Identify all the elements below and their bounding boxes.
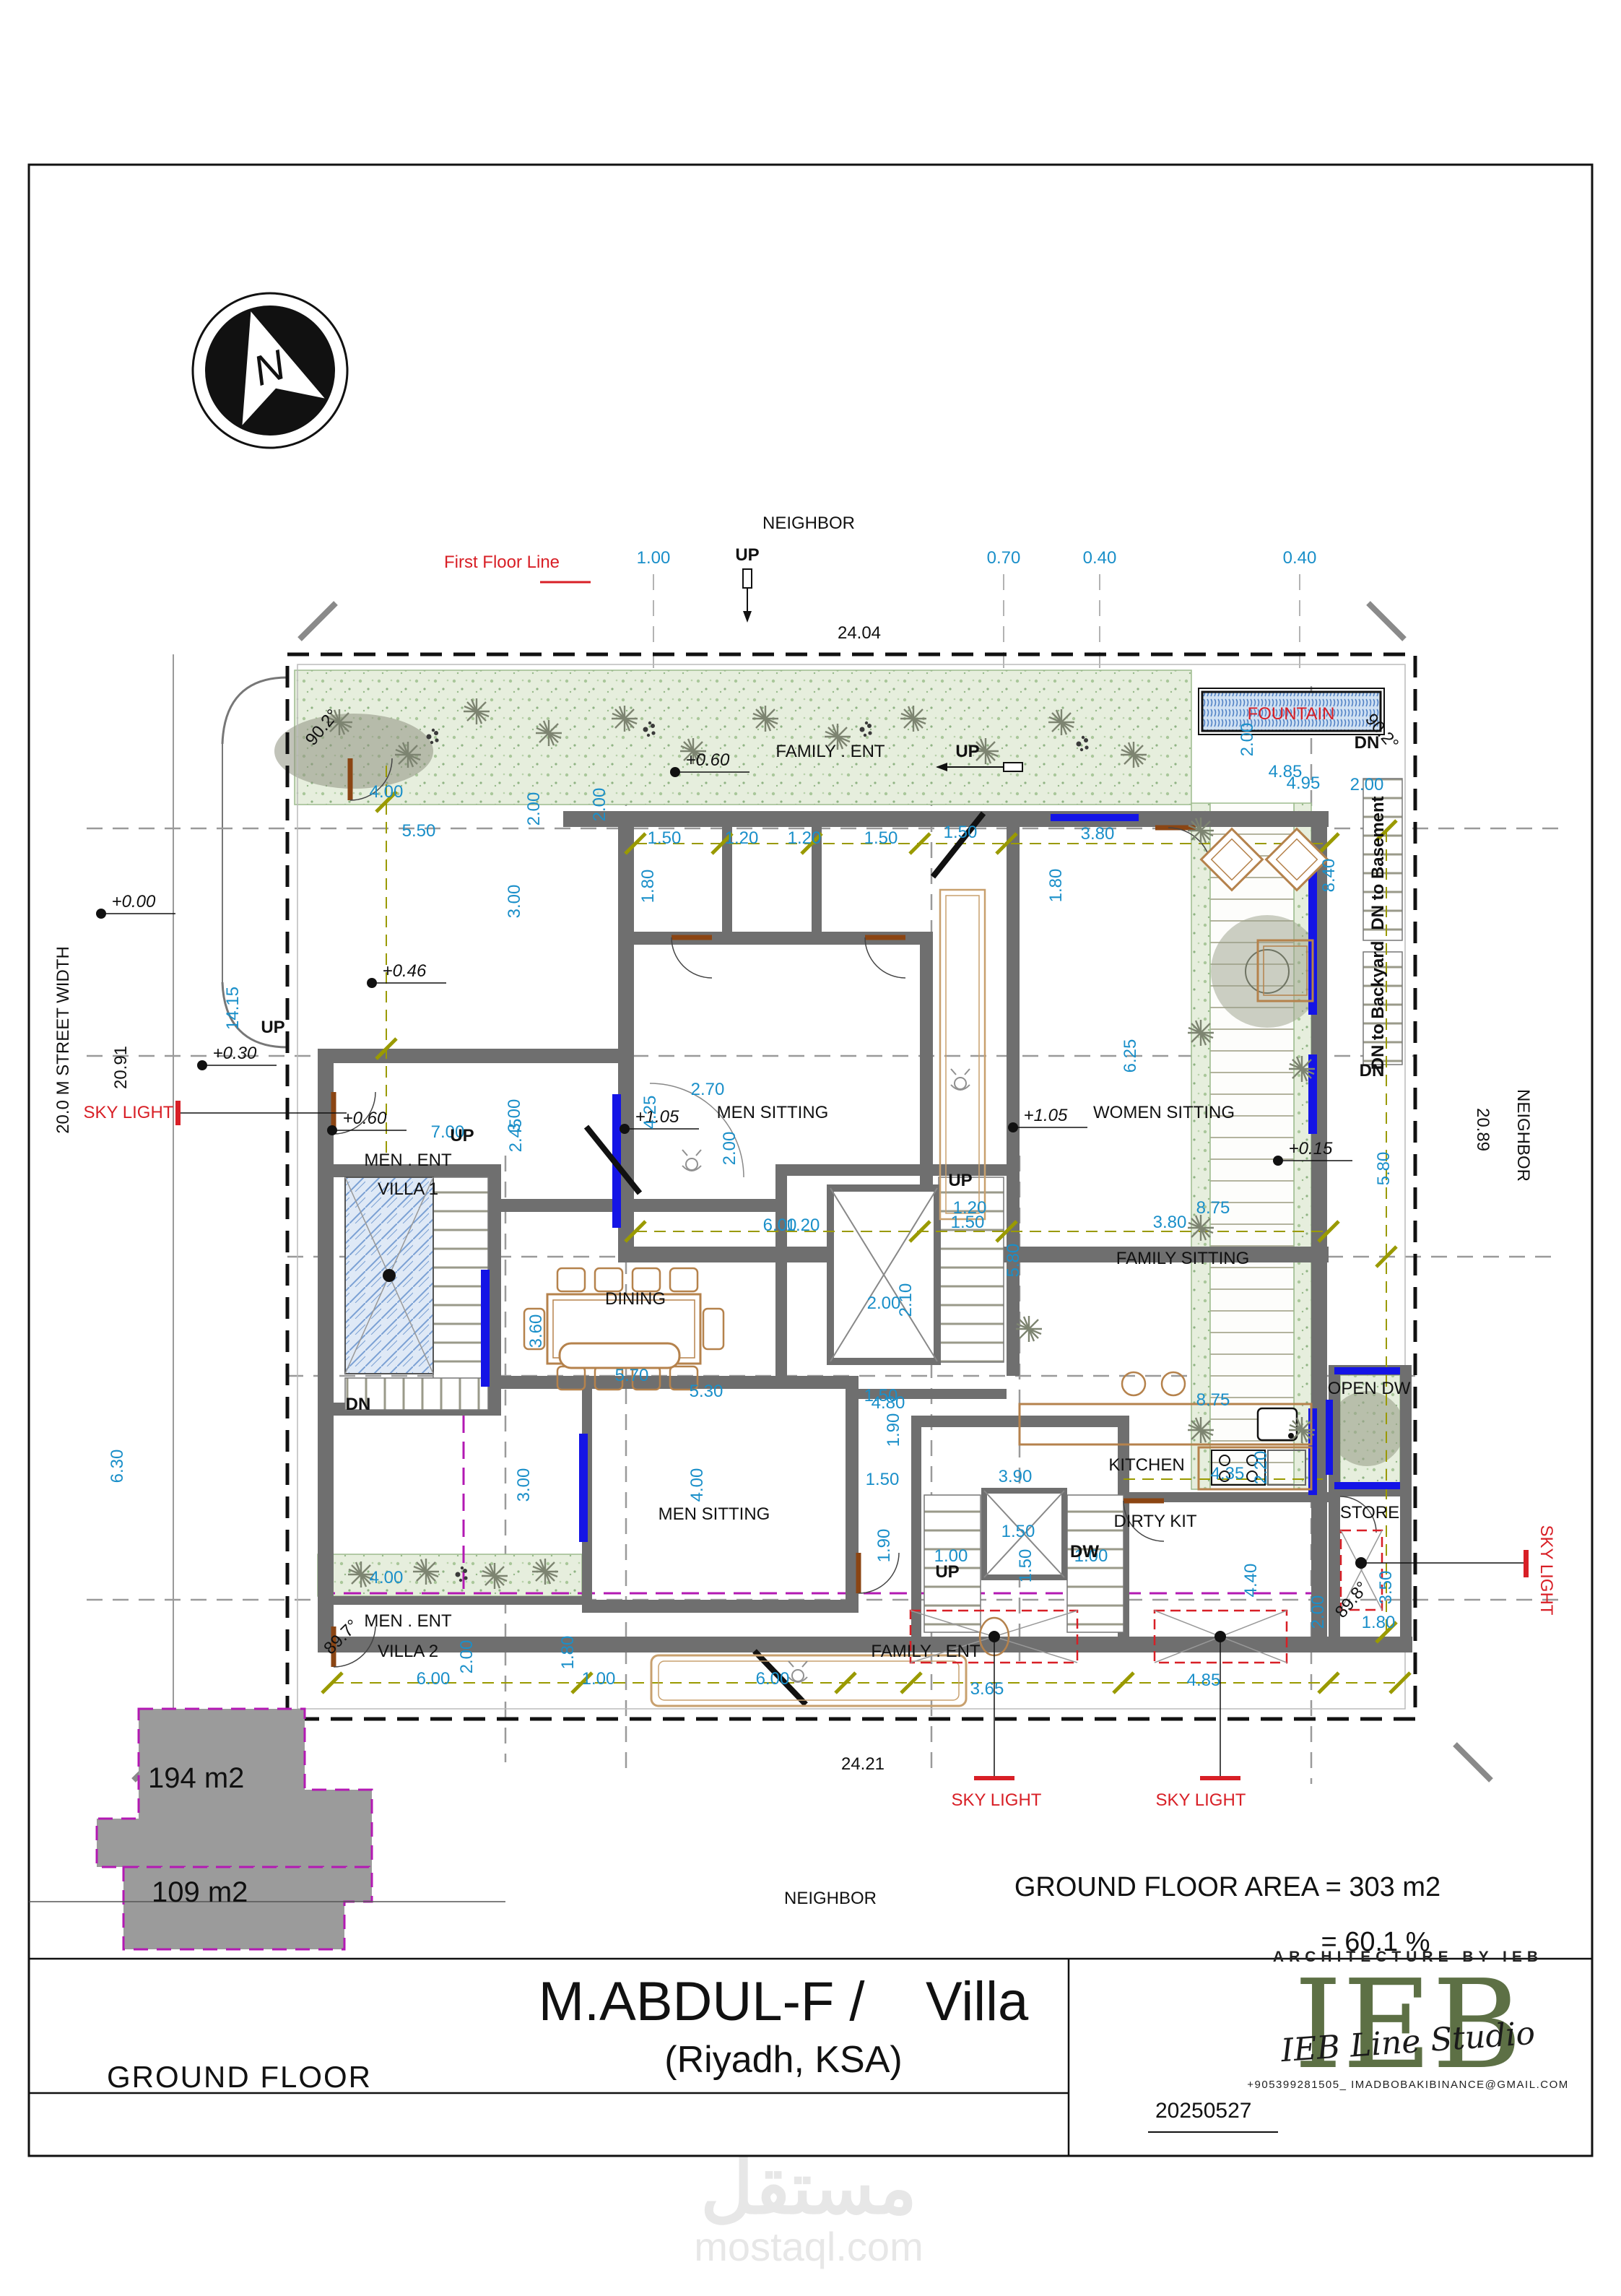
plan-annotation: 1.50	[1016, 1549, 1035, 1583]
plan-annotation: 4.40	[1241, 1564, 1261, 1598]
plan-annotation: VILLA 2	[378, 1642, 438, 1661]
plan-annotation: 3.60	[526, 1314, 546, 1348]
plan-annotation: 2.00	[720, 1132, 739, 1166]
plan-annotation: 6.25	[1121, 1039, 1140, 1073]
plan-annotation: DN to Basement	[1368, 796, 1388, 930]
plan-annotation: 1.90	[884, 1413, 903, 1447]
room-men-sitting-2: MEN SITTING	[659, 1504, 770, 1524]
plan-annotation: 2.00	[590, 788, 609, 822]
plan-annotation: 1.80	[1046, 869, 1066, 903]
plan-annotation: 6.00	[417, 1669, 451, 1689]
plan-annotation: 1.20	[788, 828, 822, 848]
watermark-latin: mostaql.com	[556, 2224, 1061, 2269]
plan-annotation: UP	[735, 545, 759, 565]
plan-annotation: 3.00	[505, 885, 524, 919]
plan-annotation: 1.80	[558, 1636, 578, 1670]
neighbor-right: NEIGHBOR	[1513, 1089, 1533, 1182]
street-width-label: 20.0 M STREET WIDTH	[53, 946, 73, 1134]
plan-annotation: 4.00	[687, 1468, 707, 1502]
plan-annotation: 5.50	[402, 821, 436, 841]
plan-annotation: UP	[948, 1171, 972, 1190]
room-kitchen: KITCHEN	[1108, 1455, 1184, 1475]
plan-annotation: 0.40	[1283, 548, 1317, 568]
fountain-label: FOUNTAIN	[1248, 704, 1335, 724]
plan-annotation: VILLA 1	[378, 1179, 438, 1199]
plan-annotation: 1.50	[648, 828, 682, 848]
plan-annotation: 2.00	[1350, 775, 1384, 794]
room-dirty-kit: DIRTY KIT	[1113, 1512, 1196, 1531]
plan-annotation: 1.50	[864, 828, 898, 848]
plan-annotation: +0.00	[112, 892, 156, 911]
plan-annotation: 1.50	[866, 1470, 900, 1489]
plan-annotation: 0.40	[1083, 548, 1117, 568]
neighbor-bottom: NEIGHBOR	[784, 1889, 877, 1908]
plan-annotation: DW	[1070, 1542, 1099, 1561]
project-title: M.ABDUL-F / Villa	[242, 1970, 1325, 2033]
plan-annotation: SKY LIGHT	[1537, 1525, 1556, 1616]
plan-annotation: 4.95	[1287, 774, 1321, 793]
plan-annotation: DN	[1355, 733, 1380, 753]
dim-left: 20.91	[111, 1046, 131, 1089]
deck	[1210, 803, 1294, 1489]
plan-annotation: 2.00	[457, 1640, 477, 1674]
area-diagram	[29, 1709, 505, 1949]
drawing-sheet: N	[0, 0, 1621, 2296]
plan-annotation: 4.00	[370, 782, 404, 802]
plan-annotation: UP	[450, 1126, 474, 1145]
dim-bottom: 24.21	[841, 1754, 885, 1774]
plan-annotation: 1.20	[953, 1198, 987, 1218]
plan-annotation: 1.20	[725, 828, 759, 848]
room-men-sitting-1: MEN SITTING	[717, 1103, 829, 1122]
watermark: مستقل mostaql.com	[556, 2152, 1061, 2269]
plan-annotation: 2.10	[896, 1283, 916, 1317]
room-family-ent-top: FAMILY . ENT	[775, 742, 885, 761]
ieb-logo: ARCHITECTURE BY IEB IEB IEB Line Studio …	[1227, 1949, 1589, 2133]
plan-annotation: 8.40	[1319, 859, 1339, 893]
plan-annotation: DN to Backyard	[1368, 941, 1388, 1070]
logo-contact: +905399281505_ IMADBOBAKIBINANCE@GMAIL.C…	[1227, 2079, 1589, 2091]
plan-annotation: 8.75	[1196, 1198, 1230, 1218]
plan-annotation: SKY LIGHT	[84, 1103, 174, 1122]
plan-annotation: 4.25	[640, 1096, 660, 1130]
room-open-dw: OPEN DW	[1328, 1379, 1411, 1398]
plan-annotation: 3.90	[999, 1467, 1033, 1486]
plan-annotation: SKY LIGHT	[1156, 1790, 1246, 1810]
dim-right: 20.89	[1473, 1108, 1492, 1151]
plan-annotation: 1.50	[1001, 1522, 1035, 1541]
plan-annotation: 1.20	[786, 1216, 820, 1235]
plan-annotation: 3.65	[970, 1679, 1004, 1699]
plan-annotation: 6.00	[756, 1669, 790, 1689]
area-lower-label: 109 m2	[152, 1876, 248, 1909]
dim-top: 24.04	[838, 623, 881, 643]
plan-annotation: 3.80	[1153, 1213, 1187, 1232]
room-store: STORE	[1340, 1503, 1399, 1522]
plan-annotation: 3.80	[1081, 824, 1115, 844]
plan-annotation: 2.20	[1251, 1451, 1271, 1485]
plan-annotation: UP	[261, 1018, 284, 1037]
plan-annotation: 1.00	[637, 548, 671, 568]
plan-annotation: UP	[955, 742, 979, 761]
ground-floor-area-text: GROUND FLOOR AREA = 303 m2	[996, 1872, 1459, 1903]
plan-annotation: 8.75	[1196, 1390, 1230, 1410]
plan-annotation: 5.80	[1374, 1152, 1394, 1186]
project-location: (Riyadh, KSA)	[242, 2038, 1325, 2081]
plan-annotation: SKY LIGHT	[952, 1790, 1042, 1810]
plan-annotation: 5.30	[690, 1382, 723, 1401]
plan-annotation: +0.60	[686, 750, 730, 770]
plan-annotation: 3.00	[514, 1468, 534, 1502]
plan-annotation: 1.90	[874, 1529, 894, 1563]
first-floor-line-label: First Floor Line	[444, 553, 560, 572]
neighbor-top: NEIGHBOR	[762, 514, 855, 533]
room-women-sitting: WOMEN SITTING	[1093, 1103, 1235, 1122]
plan-annotation: +0.30	[213, 1044, 257, 1063]
street-curb	[173, 654, 287, 1769]
plan-annotation: DN	[346, 1395, 371, 1414]
plan-annotation: 2.70	[691, 1080, 725, 1099]
room-men-ent-villa2: MEN . ENT	[364, 1611, 452, 1631]
plan-annotation: +0.60	[343, 1109, 387, 1128]
plan-annotation: 2.00	[1238, 723, 1257, 757]
north-compass-icon: N	[193, 293, 347, 448]
plan-annotation: 4.00	[370, 1568, 404, 1587]
plan-annotation: DN	[1360, 1061, 1385, 1080]
plan-annotation: 1.50	[944, 823, 978, 842]
plan-annotation: +0.15	[1289, 1139, 1333, 1158]
plan-annotation: 1.00	[582, 1669, 616, 1689]
room-family-sitting: FAMILY SITTING	[1116, 1249, 1249, 1268]
plan-annotation: 4.85	[1187, 1671, 1221, 1690]
plan-annotation: 0.70	[987, 548, 1021, 568]
plan-annotation: 6.30	[108, 1450, 127, 1483]
plan-annotation: 14.15	[223, 987, 243, 1030]
plan-annotation: 3.50	[1376, 1571, 1396, 1605]
plan-annotation: 1.80	[1362, 1613, 1396, 1632]
area-upper-label: 194 m2	[148, 1762, 244, 1795]
plan-annotation: 5.70	[615, 1366, 649, 1385]
plan-annotation: 5.80	[1004, 1244, 1023, 1278]
plan-annotation: UP	[935, 1562, 959, 1582]
room-men-ent-villa1: MEN . ENT	[364, 1151, 452, 1170]
plan-annotation: 4.35	[1211, 1464, 1245, 1483]
room-family-ent-bottom: FAMILY . ENT	[871, 1642, 980, 1661]
room-dining: DINING	[605, 1289, 666, 1309]
plan-annotation: 2.00	[1308, 1595, 1328, 1629]
plan-annotation: +1.05	[1024, 1106, 1068, 1125]
plan-annotation: 1.50	[864, 1386, 898, 1405]
plan-annotation: +0.46	[383, 961, 427, 981]
plan-annotation: 2.00	[524, 792, 544, 826]
plan-annotation: 2.45	[506, 1119, 526, 1153]
plan-annotation: 1.80	[638, 870, 658, 904]
skylight-hatch	[345, 1177, 433, 1374]
watermark-arabic: مستقل	[556, 2152, 1061, 2224]
